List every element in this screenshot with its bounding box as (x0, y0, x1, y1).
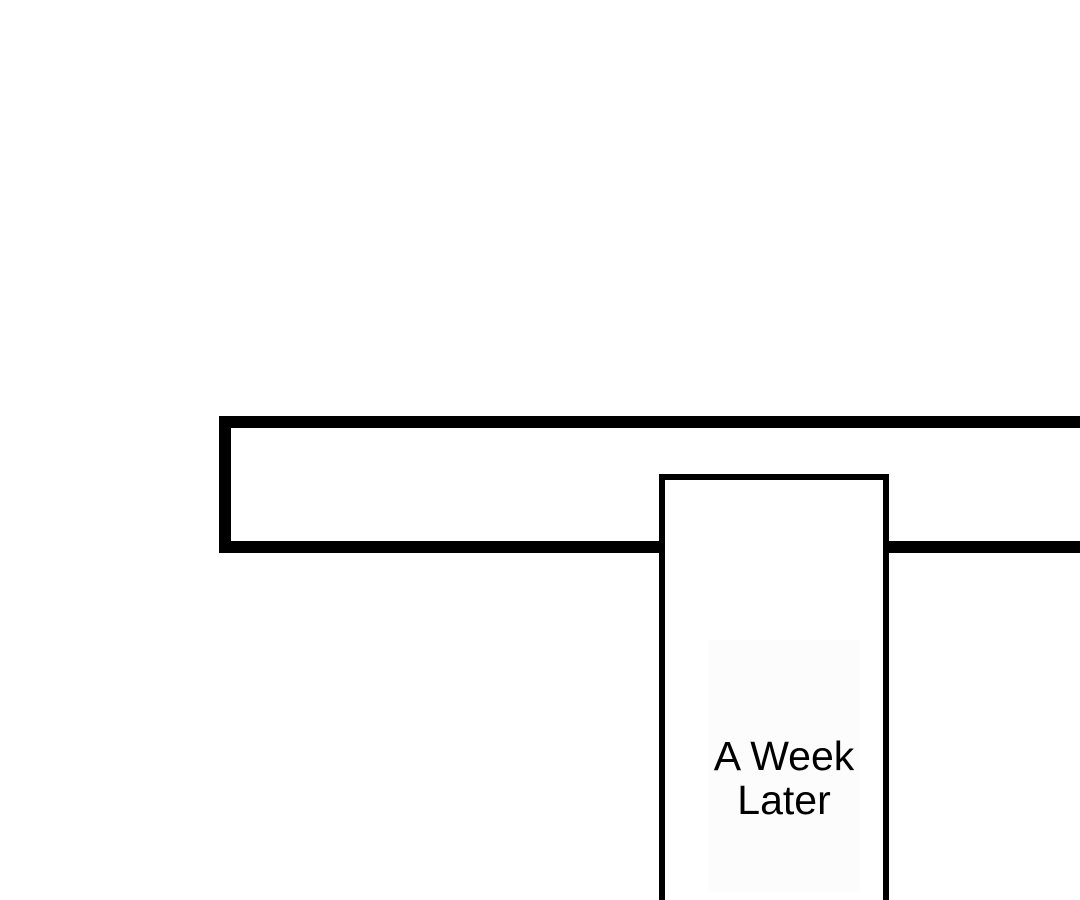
caption-line-2: Later (708, 778, 860, 822)
horizontal-panel (219, 416, 1080, 553)
comic-page: A Week Later (0, 0, 1080, 900)
caption-box: A Week Later (708, 640, 860, 892)
caption-text: A Week Later (708, 734, 860, 822)
caption-line-1: A Week (708, 734, 860, 778)
